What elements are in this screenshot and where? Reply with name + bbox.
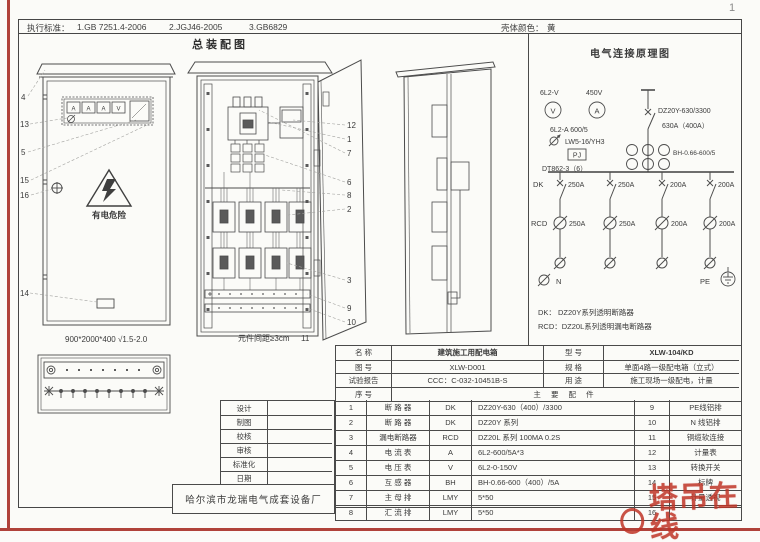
callout-13: 13 xyxy=(20,120,29,129)
titleblock-review: 审核 xyxy=(221,443,267,457)
callout-7: 7 xyxy=(347,149,352,158)
part-name2: N 线铝排 xyxy=(669,415,741,430)
part-name: 电 流 表 xyxy=(366,445,429,460)
part-no2: 12 xyxy=(634,445,669,460)
part-spec: DZ20L 系列 100MA 0.2S xyxy=(471,430,634,445)
part-name2: 计量表 xyxy=(669,445,741,460)
schematic-drawing: 电气连接原理图 6L2-V 450V V A 6L2-A 600/5 LW5-1… xyxy=(528,33,742,345)
base-holes xyxy=(66,369,140,371)
part-spec: 5*50 xyxy=(471,505,634,520)
part-spec: BH-0.66-600（400）/5A xyxy=(471,475,634,490)
part-no: 6 xyxy=(336,475,366,490)
part-name: 主 母 排 xyxy=(366,490,429,505)
part-spec: 6L2-600/5A*3 xyxy=(471,445,634,460)
panel-meter-a3: A xyxy=(101,107,105,113)
voltage-label: 450V xyxy=(586,90,603,97)
ammeter-symbol: A xyxy=(594,107,599,116)
part-no: 2 xyxy=(336,415,366,430)
part-spec: 5*50 xyxy=(471,490,634,505)
model-value: XLW-104/KD xyxy=(603,346,739,360)
callout-2: 2 xyxy=(347,205,352,214)
rcd-rating-2: 250A xyxy=(619,221,636,228)
standards-label: 执行标准： xyxy=(27,22,70,34)
red-left-rule xyxy=(7,0,10,531)
part-name: 电 压 表 xyxy=(366,460,429,475)
callout-9: 9 xyxy=(347,304,352,313)
internal-callouts: 12 1 7 6 8 2 3 9 10 xyxy=(347,121,356,327)
legend-rcd: RCD：DZ20L系列透明漏电断路器 xyxy=(538,321,652,331)
watermark-logo-icon xyxy=(620,508,645,535)
part-no2: 9 xyxy=(634,400,669,415)
open-door xyxy=(314,60,366,340)
titleblock-value xyxy=(267,401,332,415)
titleblock-check: 校核 xyxy=(221,429,267,443)
titleblock-value xyxy=(267,471,332,485)
panel-meter-v: V xyxy=(116,107,120,113)
part-name: 漏电断路器 xyxy=(366,430,429,445)
titleblock-value xyxy=(267,443,332,457)
use-value: 施工现场一级配电，计量 xyxy=(603,373,739,387)
side-components xyxy=(432,105,469,304)
name-label: 名 称 xyxy=(336,346,391,360)
titleblock-date: 日期 xyxy=(221,471,267,485)
callout-10: 10 xyxy=(347,318,356,327)
pj-label: PJ xyxy=(573,153,581,160)
rcd-rating-1: 250A xyxy=(569,221,586,228)
pe-ground-icon xyxy=(721,267,735,286)
watermark: 塔吊在线 xyxy=(619,482,760,542)
page-number: 1 xyxy=(729,2,735,14)
voltmeter-symbol: V xyxy=(550,107,555,116)
dk-rating-1: 250A xyxy=(568,182,585,189)
main-breaker-rating: 630A（400A） xyxy=(662,122,709,130)
part-code: DK xyxy=(429,400,471,415)
main-breaker-label: DZ20Y-630/3300 xyxy=(658,108,711,115)
front-meter-panel xyxy=(62,97,153,125)
titleblock-standardize: 标准化 xyxy=(221,457,267,471)
dk-rating-4: 200A xyxy=(718,182,735,189)
panel-meter-a2: A xyxy=(86,107,90,113)
front-leader-lines xyxy=(28,70,149,302)
callout-8: 8 xyxy=(347,191,352,200)
busbar-holes xyxy=(218,293,297,309)
part-code: V xyxy=(429,460,471,475)
callout-15: 15 xyxy=(20,176,29,185)
part-name: 汇 流 排 xyxy=(366,505,429,520)
part-code: DK xyxy=(429,415,471,430)
side-cabinet-outline xyxy=(396,62,495,334)
part-code: A xyxy=(429,445,471,460)
title-block: 设计 制图 校核 审核 标准化 日期 xyxy=(220,400,335,486)
titleblock-value xyxy=(267,415,332,429)
rcd-rating-3: 200A xyxy=(671,221,688,228)
report-label: 试验报告 xyxy=(336,373,391,387)
base-outline xyxy=(38,355,170,413)
callout-5: 5 xyxy=(21,148,26,157)
base-bolts xyxy=(45,386,163,398)
part-no: 5 xyxy=(336,460,366,475)
callout-12: 12 xyxy=(347,121,356,130)
kwh-meter-box xyxy=(268,107,303,138)
part-code: RCD xyxy=(429,430,471,445)
titleblock-design: 设计 xyxy=(221,401,267,415)
use-label: 用 途 xyxy=(543,373,603,387)
legend-dk: DK： DZ20Y系列透明断路器 xyxy=(538,307,634,317)
part-code: LMY xyxy=(429,505,471,520)
pe-label: PE xyxy=(700,277,710,286)
part-name: 互 感 器 xyxy=(366,475,429,490)
dk-rating-2: 250A xyxy=(618,182,635,189)
part-name: 断 路 器 xyxy=(366,400,429,415)
callout-11: 11 xyxy=(301,334,310,343)
side-view-drawing xyxy=(390,50,525,350)
rcd-rating-4: 200A xyxy=(719,221,736,228)
part-code: LMY xyxy=(429,490,471,505)
nameplate xyxy=(97,299,114,308)
cabinet-dimension: 900*2000*400 √1.5-2.0 xyxy=(65,335,148,344)
spec-label: 规 格 xyxy=(543,360,603,374)
callout-16: 16 xyxy=(20,191,29,200)
info-table: 名 称 建筑施工用配电箱 型 号 XLW-104/KD 图 号 XLW-D001… xyxy=(335,345,742,402)
electric-danger-icon xyxy=(87,170,131,206)
spec-value: 单面4路一级配电箱（立式） xyxy=(603,360,739,374)
main-breaker xyxy=(228,97,268,140)
dk-breaker-row xyxy=(213,202,311,232)
part-name: 断 路 器 xyxy=(366,415,429,430)
front-callouts: 4 13 5 15 16 14 xyxy=(20,93,29,298)
drawing-no-label: 图 号 xyxy=(336,360,391,374)
internal-view-drawing: 12 1 7 6 8 2 3 9 10 元件间距≥3cm 11 xyxy=(185,50,370,350)
part-no2: 10 xyxy=(634,415,669,430)
warning-text: 有电危险 xyxy=(92,210,127,220)
n-label: N xyxy=(556,277,561,286)
voltmeter-type: 6L2-V xyxy=(540,90,559,97)
drawing-sheet: 1 执行标准： 1.GB 7251.4-2006 2.JGJ46-2005 3.… xyxy=(0,0,760,542)
part-no: 7 xyxy=(336,490,366,505)
part-name2: 铜缆软连接 xyxy=(669,430,741,445)
changeover-switch-icon xyxy=(549,135,560,146)
n-terminal-icon xyxy=(538,274,550,286)
manufacturer-name: 哈尔滨市龙瑞电气成套设备厂 xyxy=(185,492,322,506)
wire-bundles xyxy=(221,172,303,290)
titleblock-draft: 制图 xyxy=(221,415,267,429)
panel-meter-a1: A xyxy=(71,107,75,113)
part-name2: 转换开关 xyxy=(669,460,741,475)
spacing-note: 元件间距≥3cm xyxy=(238,333,290,343)
standards-strip: 执行标准： 1.GB 7251.4-2006 2.JGJ46-2005 3.GB… xyxy=(19,20,741,34)
ammeter-type: 6L2-A 600/5 xyxy=(550,127,588,134)
callout-14: 14 xyxy=(20,289,29,298)
report-value: CCC：C-032-10451B-S xyxy=(391,373,543,387)
watermark-text: 塔吊在线 xyxy=(648,482,760,542)
drawing-no-value: XLW-D001 xyxy=(391,360,543,374)
front-view-drawing: A A A V 有电危险 4 13 5 xyxy=(18,50,198,350)
part-no: 1 xyxy=(336,400,366,415)
callout-3: 3 xyxy=(347,276,352,285)
dk-row-label: DK xyxy=(533,180,543,189)
dk-rating-3: 200A xyxy=(670,182,687,189)
base-detail-drawing xyxy=(30,350,180,420)
parts-header: 主 要 配 件 xyxy=(391,387,739,401)
titleblock-value xyxy=(267,457,332,471)
part-name2: PE线铝排 xyxy=(669,400,741,415)
main-breaker-symbol xyxy=(641,90,655,172)
part-no: 4 xyxy=(336,445,366,460)
rcd-row-label: RCD xyxy=(531,219,548,228)
changeover-switch-label: LW5-16/YH3 xyxy=(565,139,605,146)
part-no: 8 xyxy=(336,505,366,520)
standard-3: 3.GB6829 xyxy=(249,22,287,32)
part-spec: DZ20Y-630（400）/3300 xyxy=(471,400,634,415)
part-code: BH xyxy=(429,475,471,490)
pe-n-busbars xyxy=(205,290,310,312)
part-no2: 13 xyxy=(634,460,669,475)
model-label: 型 号 xyxy=(543,346,603,360)
part-spec: DZ20Y 系列 xyxy=(471,415,634,430)
titleblock-value xyxy=(267,429,332,443)
manufacturer-box: 哈尔滨市龙瑞电气成套设备厂 xyxy=(172,484,335,514)
standard-2: 2.JGJ46-2005 xyxy=(169,22,222,32)
name-value: 建筑施工用配电箱 xyxy=(391,346,543,360)
door-lock-icon xyxy=(51,182,63,194)
callout-1: 1 xyxy=(347,135,352,144)
part-no2: 11 xyxy=(634,430,669,445)
rcd-breaker-row xyxy=(213,248,311,278)
schematic-title: 电气连接原理图 xyxy=(590,47,671,60)
serial-label: 序 号 xyxy=(336,387,391,401)
current-transformers xyxy=(231,140,264,172)
ct-label: BH-0.66-600/5 xyxy=(673,150,716,157)
part-spec: 6L2-0-150V xyxy=(471,460,634,475)
callout-4: 4 xyxy=(21,93,26,102)
callout-6: 6 xyxy=(347,178,352,187)
standard-1: 1.GB 7251.4-2006 xyxy=(77,22,146,32)
part-no: 3 xyxy=(336,430,366,445)
